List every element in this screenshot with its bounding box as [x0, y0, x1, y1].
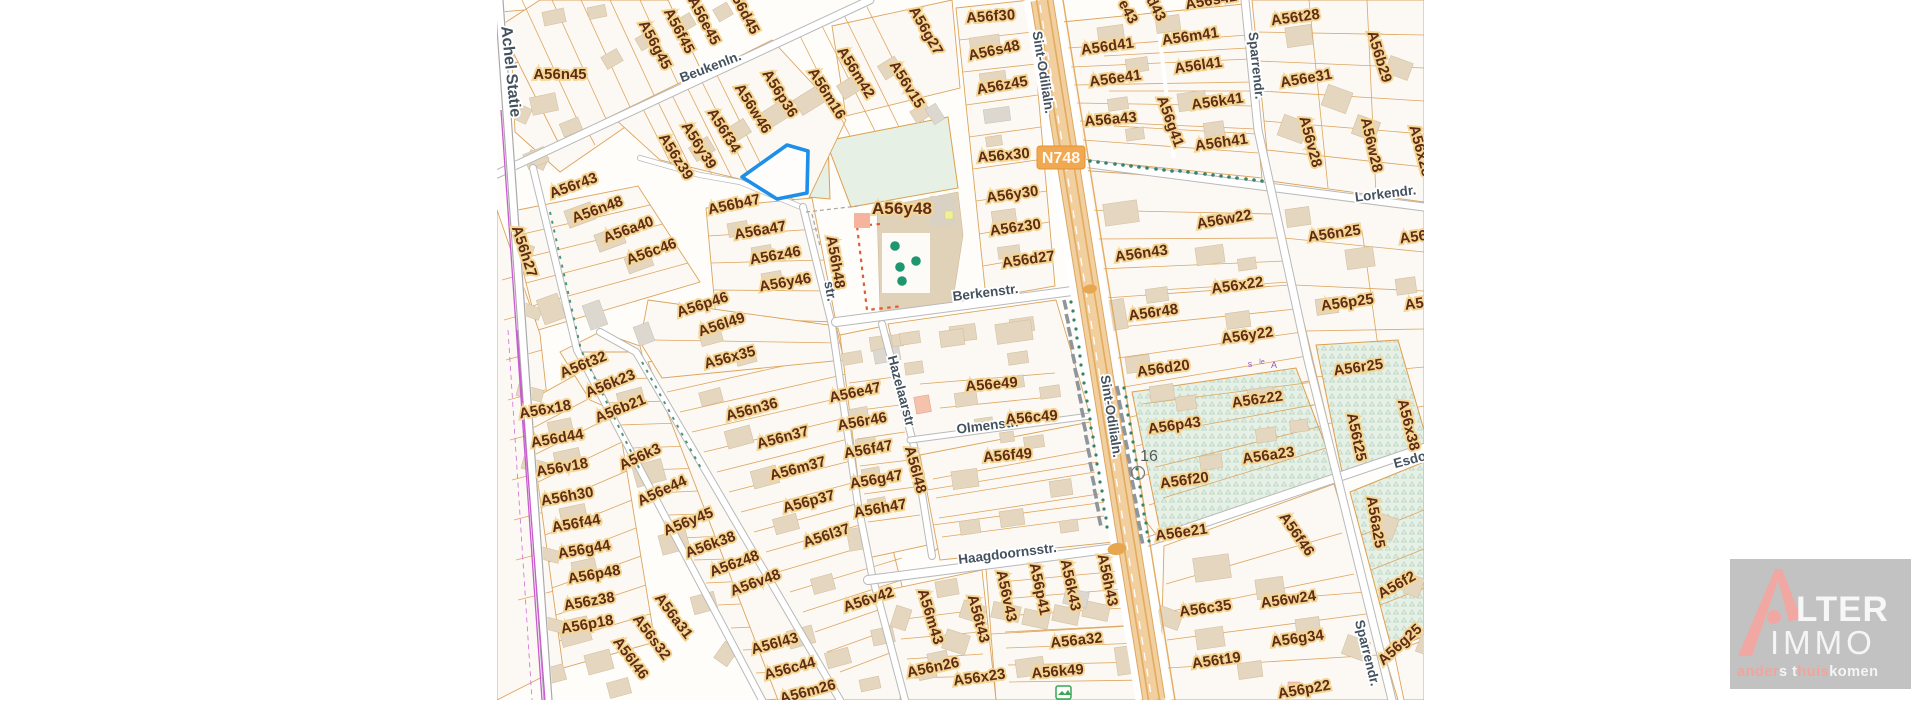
svg-text:s: s — [1248, 359, 1253, 369]
svg-text:A: A — [1271, 360, 1277, 370]
svg-text:N748: N748 — [1042, 150, 1080, 167]
svg-text:A56n45: A56n45 — [533, 67, 586, 83]
svg-text:16: 16 — [1140, 448, 1158, 465]
svg-text:A56: A56 — [1404, 294, 1424, 314]
svg-text:A56f30: A56f30 — [966, 7, 1016, 26]
svg-text:anders thuiskomen: anders thuiskomen — [1737, 664, 1878, 680]
svg-text:le: le — [1259, 359, 1265, 366]
svg-text:IMMO: IMMO — [1770, 624, 1876, 661]
svg-text:A56y48: A56y48 — [872, 199, 932, 218]
